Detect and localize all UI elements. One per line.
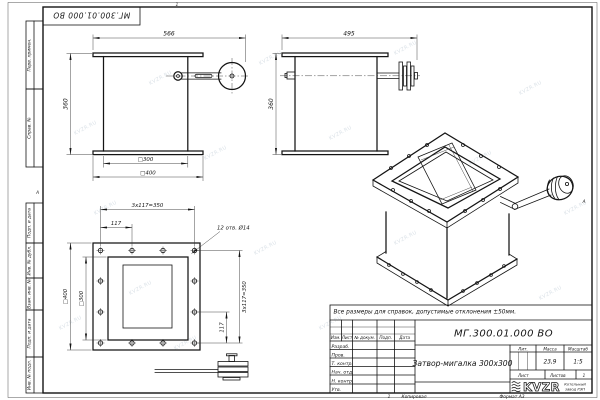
dim-plan-step-right: 117 xyxy=(220,322,226,333)
dim-front-width: 566 xyxy=(163,31,175,38)
margin-label-sprav: Справ. № xyxy=(27,117,33,139)
watermark-text: KVZR.RU xyxy=(173,335,198,352)
margin-label-inv-dubl: Инв. № дубл. xyxy=(27,245,33,275)
tb-sheets-value: 1 xyxy=(583,373,586,378)
tb-sheet-label: Лист xyxy=(517,373,529,378)
tb-doc-number: МГ.300.01.000 ВО xyxy=(454,329,553,340)
margin-label-inv-podl: Инв. № подл. xyxy=(27,360,33,390)
margin-label-podp1: Подп. и дата xyxy=(27,208,33,238)
plan-view: 12 отв. Ø14 3х117=350 117 3х117=350 117 … xyxy=(63,203,250,380)
watermark-text: KVZR.RU xyxy=(148,70,173,87)
tb-row-nkontr: Н. контр. xyxy=(332,379,354,385)
company-logo: KVZR Котельный завод РЭП xyxy=(512,380,586,394)
watermark-text: KVZR.RU xyxy=(93,200,118,217)
doc-stamp-top: МГ.300.01.000 ВО xyxy=(53,10,130,19)
margin-label-vzam: Взам. инв. № xyxy=(27,279,33,309)
watermark-text: KVZR.RU xyxy=(328,125,353,142)
tb-mass-label: Масса xyxy=(543,346,557,351)
dim-plan-pitch-top: 3х117=350 xyxy=(132,203,164,209)
watermark-text: KVZR.RU xyxy=(393,40,418,57)
dim-side-width: 495 xyxy=(343,31,355,38)
sheet-footer: 1 Копировал Формат А3 xyxy=(388,394,525,400)
footer-zone: 1 xyxy=(388,394,391,400)
logo-text: KVZR xyxy=(523,380,560,394)
tb-scale-label: Масштаб xyxy=(568,346,588,351)
footer-copied: Копировал xyxy=(401,394,426,400)
tb-lit-label: Лит. xyxy=(517,346,528,351)
dim-plan-pitch-right: 3х117=350 xyxy=(242,281,248,313)
watermark-text: KVZR.RU xyxy=(318,315,343,332)
dim-plan-step-top: 117 xyxy=(111,221,122,227)
watermark-text: KVZR.RU xyxy=(518,80,543,97)
dim-front-outer-square: □400 xyxy=(140,171,156,177)
engineering-drawing-sheet: KVZR.RU KVZR.RU KVZR.RU KVZR.RU KVZR.RU … xyxy=(0,0,600,400)
tb-mass-value: 23,9 xyxy=(544,360,557,366)
front-view: 566 360 □300 □400 xyxy=(63,31,251,182)
watermark-text: KVZR.RU xyxy=(258,50,283,67)
tb-col-list: Лист xyxy=(341,335,353,340)
tb-row-tkontr: Т. контр. xyxy=(332,361,353,367)
tb-col-date: Дата xyxy=(398,335,410,340)
watermark-text: KVZR.RU xyxy=(538,285,563,302)
margin-stamps: Перв. примен. Справ. № Подп. и дата Инв.… xyxy=(26,21,43,393)
dim-plan-outer-square: □400 xyxy=(63,288,69,304)
zone-marker-left: А xyxy=(35,190,39,195)
tb-col-doc: № докум. xyxy=(353,335,375,340)
watermark-text: KVZR.RU xyxy=(393,230,418,247)
margin-label-perv: Перв. примен. xyxy=(27,39,33,72)
tb-company-2: завод РЭП xyxy=(565,388,585,392)
drawing-canvas: KVZR.RU KVZR.RU KVZR.RU KVZR.RU KVZR.RU … xyxy=(0,0,600,400)
watermark-text: KVZR.RU xyxy=(73,120,98,137)
margin-label-podp2: Подп. и дата xyxy=(27,318,33,348)
dim-side-height: 360 xyxy=(268,98,275,110)
top-doc-stamp: МГ.300.01.000 ВО xyxy=(43,7,140,25)
dim-plan-inner-square: □300 xyxy=(79,290,85,306)
footer-format: Формат А3 xyxy=(499,394,524,400)
watermark-text: KVZR.RU xyxy=(128,280,153,297)
plan-holes-note: 12 отв. Ø14 xyxy=(217,225,250,232)
tb-row-nachotd: Нач. отд. xyxy=(332,370,354,376)
tb-sheets-label: Листов xyxy=(549,373,566,378)
zone-marker-top: 1 xyxy=(176,2,179,7)
watermark-text: KVZR.RU xyxy=(253,240,278,257)
watermark-text: KVZR.RU xyxy=(203,145,228,162)
title-block: Все размеры для справок, допустимые откл… xyxy=(330,305,592,394)
tb-title: Затвор-мигалка 300х300 xyxy=(413,359,513,368)
note-text: Все размеры для справок, допустимые откл… xyxy=(334,310,517,316)
tb-row-razrab: Разраб. xyxy=(332,344,350,350)
tb-scale-value: 1:5 xyxy=(573,360,583,366)
tb-row-prov: Пров. xyxy=(332,353,345,359)
tb-col-izm: Изм. xyxy=(331,335,341,340)
dim-front-inner-square: □300 xyxy=(138,157,154,163)
zone-marker-right: А xyxy=(582,199,586,204)
tb-row-utv: Утв. xyxy=(332,387,342,393)
dim-front-height: 360 xyxy=(63,98,70,110)
watermark-text: KVZR.RU xyxy=(468,150,493,167)
tb-company-1: Котельный xyxy=(564,383,586,387)
tb-col-podp: Подп. xyxy=(379,335,392,340)
